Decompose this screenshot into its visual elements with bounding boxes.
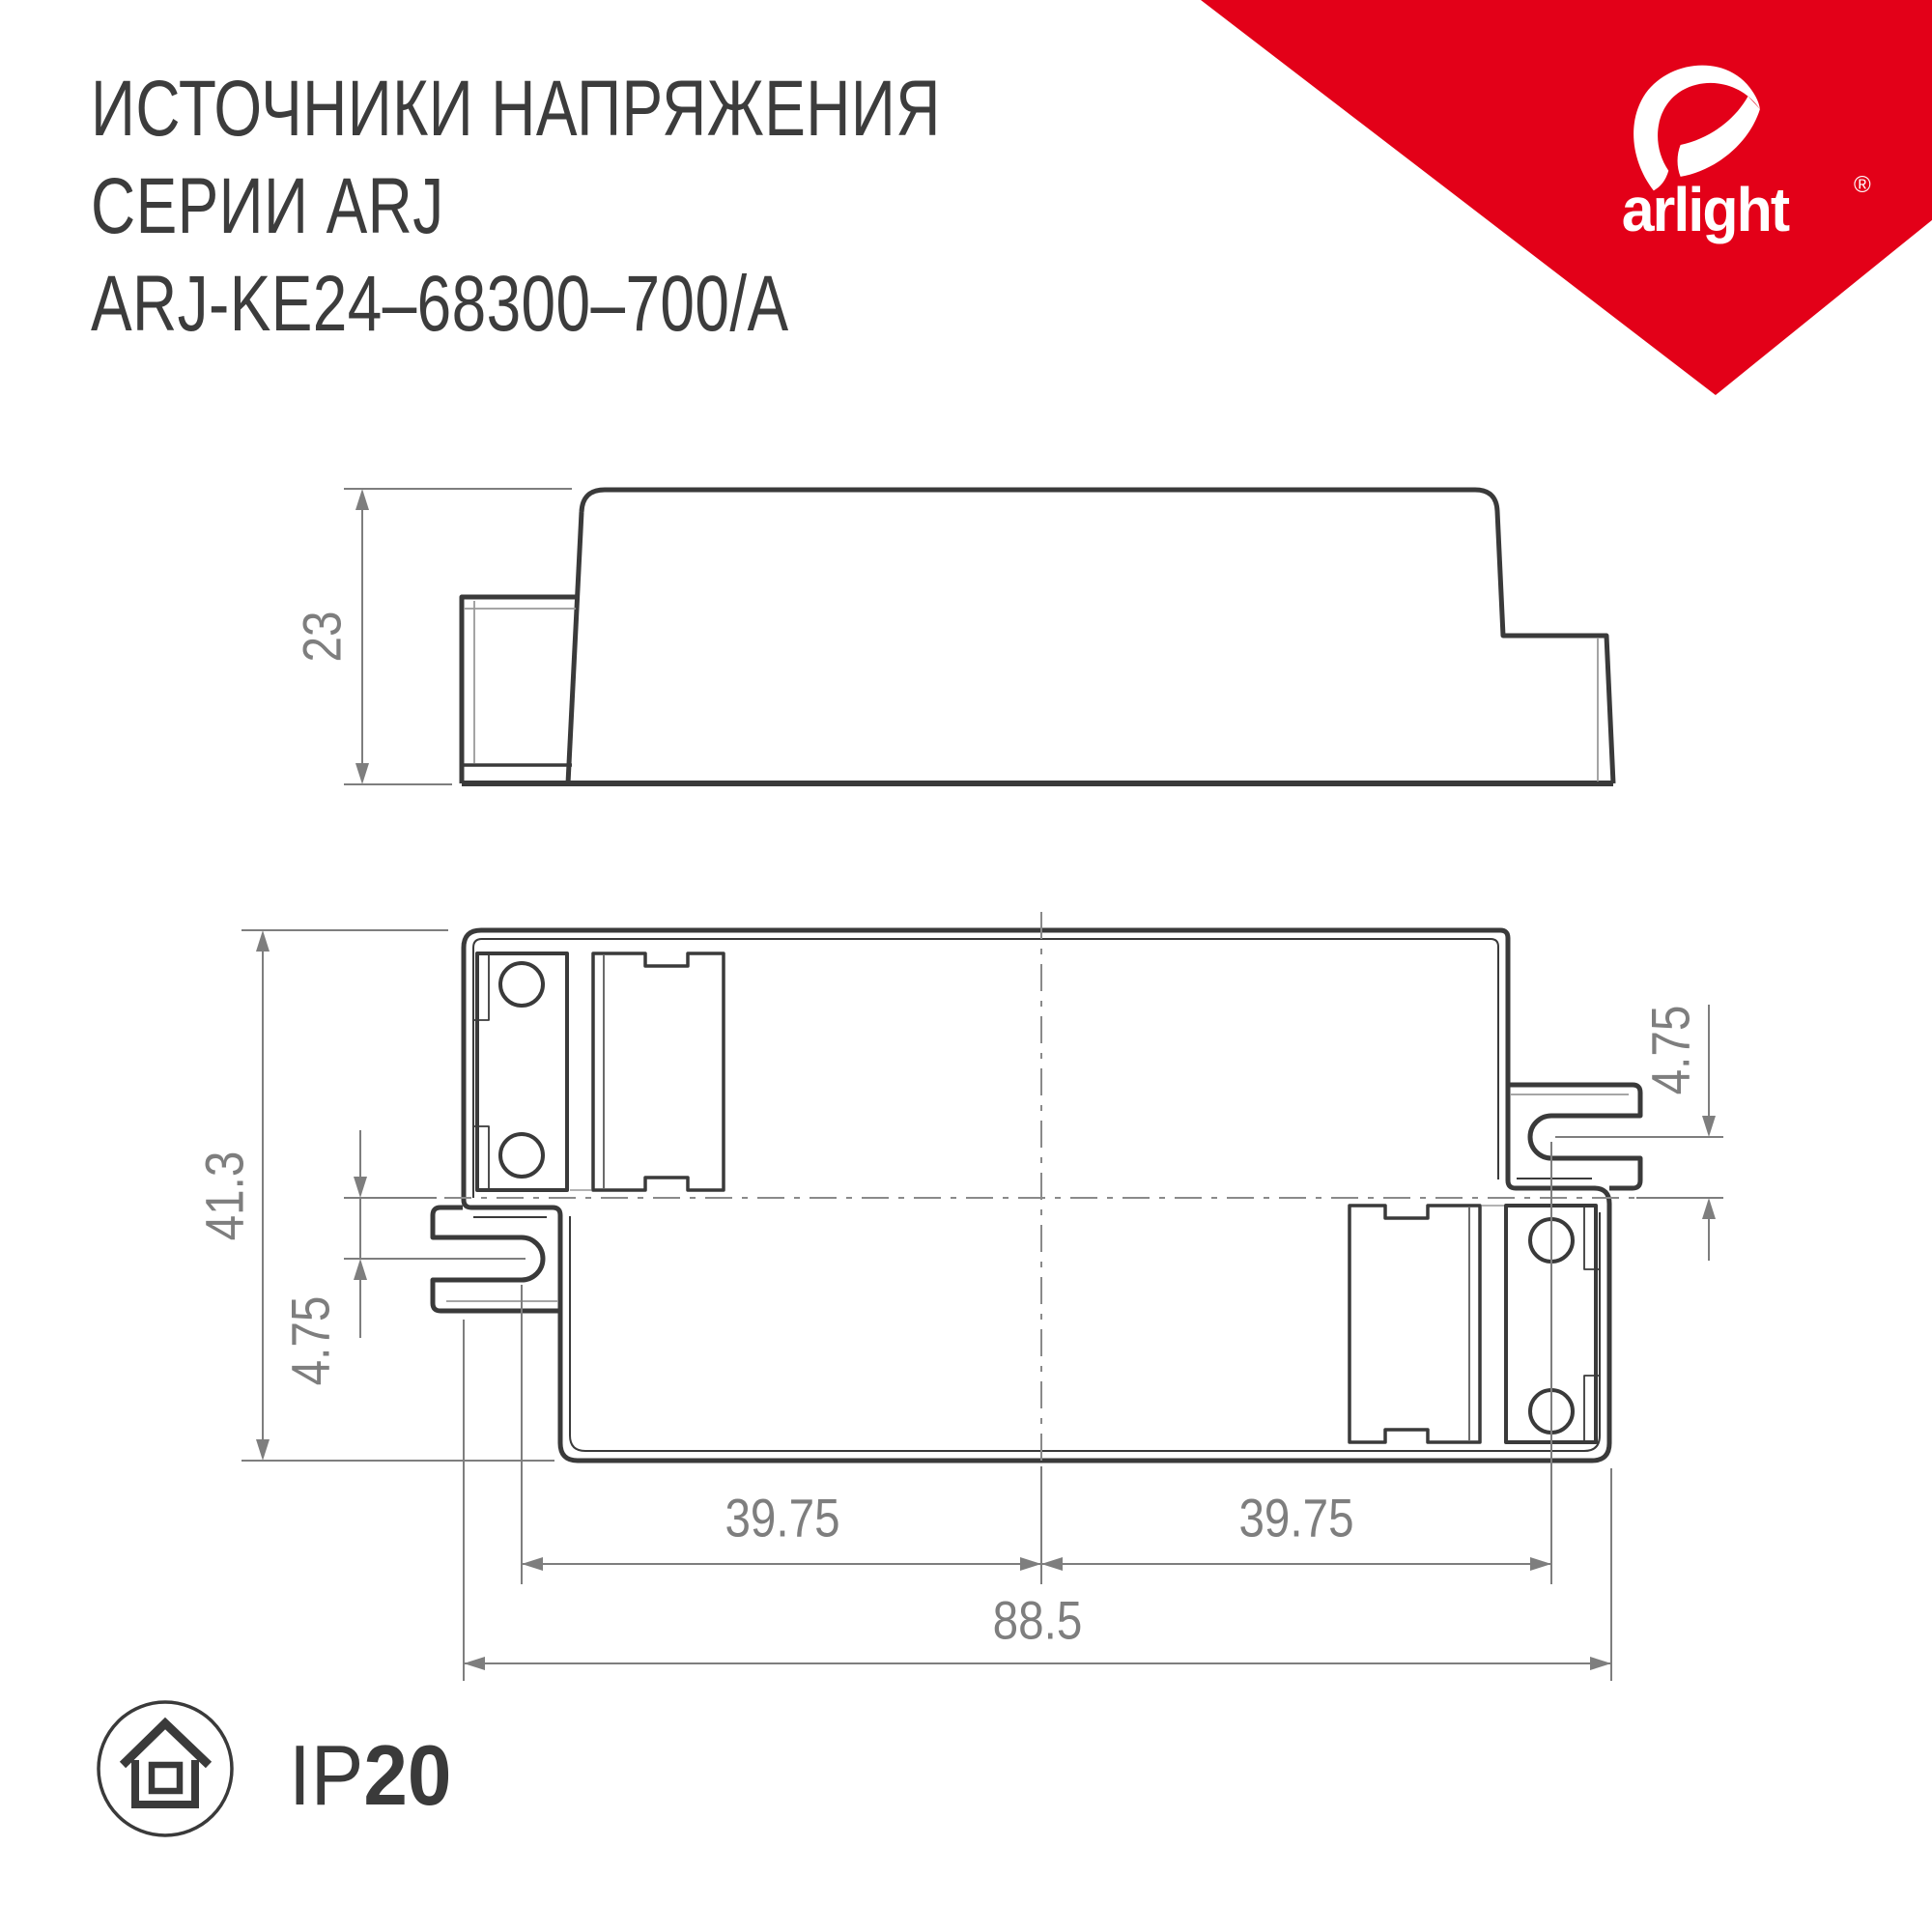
- dim-label-pitch-left: 39.75: [724, 1487, 839, 1549]
- arrow-3975R-left: [1041, 1557, 1063, 1571]
- arrow-885-left: [464, 1657, 485, 1670]
- dim-label-width-413: 41.3: [193, 1151, 256, 1241]
- screw-hole-left-top: [500, 963, 543, 1006]
- ip-rating-value: 20: [363, 1727, 451, 1823]
- side-view-left-edge: [568, 512, 582, 783]
- arrow-475L-top: [354, 1177, 367, 1198]
- arrow-3975L-right: [1020, 1557, 1041, 1571]
- top-view: [433, 930, 1640, 1461]
- side-view-top-outline: [582, 490, 1613, 783]
- case-inner-outline-top: [473, 939, 1498, 1198]
- terminal-block-left: [593, 953, 724, 1190]
- side-view-mounting-tab: [462, 597, 579, 783]
- indoor-use-icon: [96, 1699, 235, 1838]
- arrow-475R-top: [1702, 1116, 1716, 1137]
- arrow-23-up: [355, 489, 369, 510]
- arrow-413-up: [256, 930, 270, 952]
- centerlines: [444, 912, 1634, 1463]
- dim-label-height-23: 23: [291, 611, 354, 663]
- arrow-413-down: [256, 1439, 270, 1461]
- dim-label-pitch-right: 39.75: [1238, 1487, 1353, 1549]
- ip-rating: IP20: [289, 1726, 451, 1825]
- dim-label-slot-offset-left: 4.75: [279, 1296, 342, 1386]
- case-outer-outline: [464, 930, 1609, 1461]
- ip-rating-prefix: IP: [289, 1727, 363, 1823]
- technical-drawing: [0, 0, 1932, 1932]
- dim-label-slot-offset-right: 4.75: [1639, 1006, 1702, 1095]
- case-inner-outline-bottom: [570, 1212, 1600, 1451]
- side-view: [462, 490, 1613, 783]
- screw-hole-left-bottom: [500, 1134, 543, 1177]
- house-roof-icon: [123, 1723, 209, 1765]
- arrow-3975L-left: [522, 1557, 543, 1571]
- house-window-icon: [152, 1765, 180, 1791]
- terminal-block-right: [1350, 1206, 1480, 1442]
- arrow-23-down: [355, 763, 369, 784]
- arrow-885-right: [1590, 1657, 1611, 1670]
- dim-label-length-885: 88.5: [993, 1589, 1083, 1652]
- arrow-3975R-right: [1530, 1557, 1551, 1571]
- screw-plate-left: [477, 953, 567, 1190]
- arrow-475R-bottom: [1702, 1198, 1716, 1219]
- datasheet-page: ИСТОЧНИКИ НАПРЯЖЕНИЯ СЕРИИ ARJ ARJ-KE24–…: [0, 0, 1932, 1932]
- arrow-475L-bottom: [354, 1259, 367, 1280]
